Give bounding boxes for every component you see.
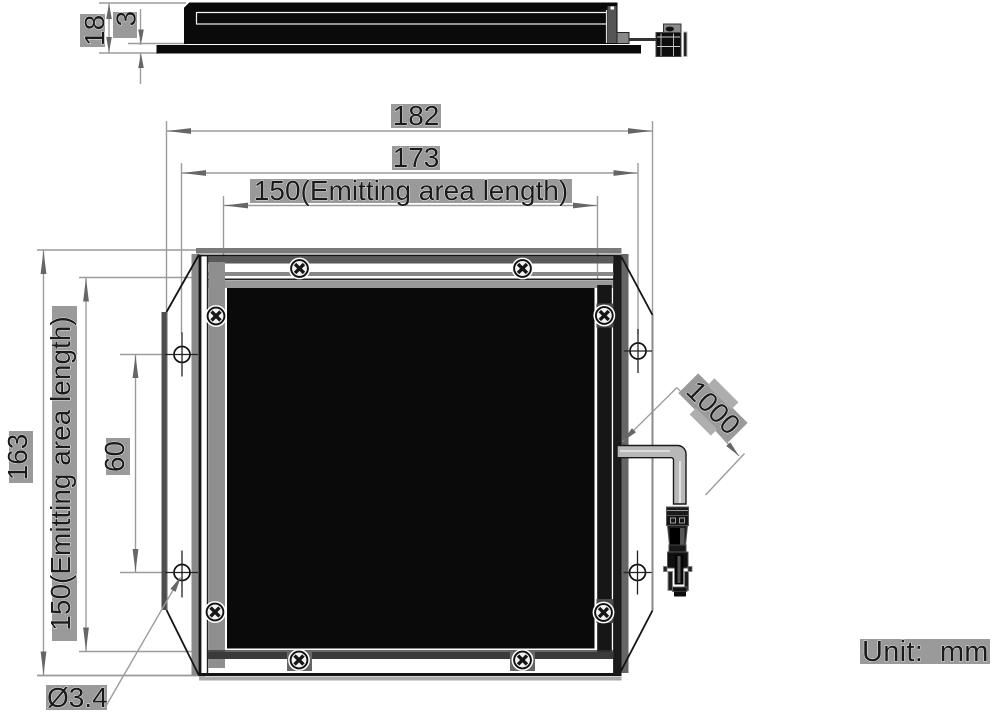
svg-text:173: 173 (393, 142, 440, 173)
svg-text:163: 163 (2, 434, 33, 481)
svg-text:Unit: mm: Unit: mm (862, 636, 989, 668)
svg-text:Ø3.4: Ø3.4 (47, 682, 108, 713)
svg-text:150(Emitting area length): 150(Emitting area length) (254, 175, 568, 206)
svg-text:60: 60 (99, 441, 130, 472)
svg-text:3: 3 (111, 11, 142, 27)
svg-text:150(Emitting area length): 150(Emitting area length) (45, 316, 76, 630)
svg-text:182: 182 (393, 100, 440, 131)
svg-text:18: 18 (79, 15, 110, 46)
